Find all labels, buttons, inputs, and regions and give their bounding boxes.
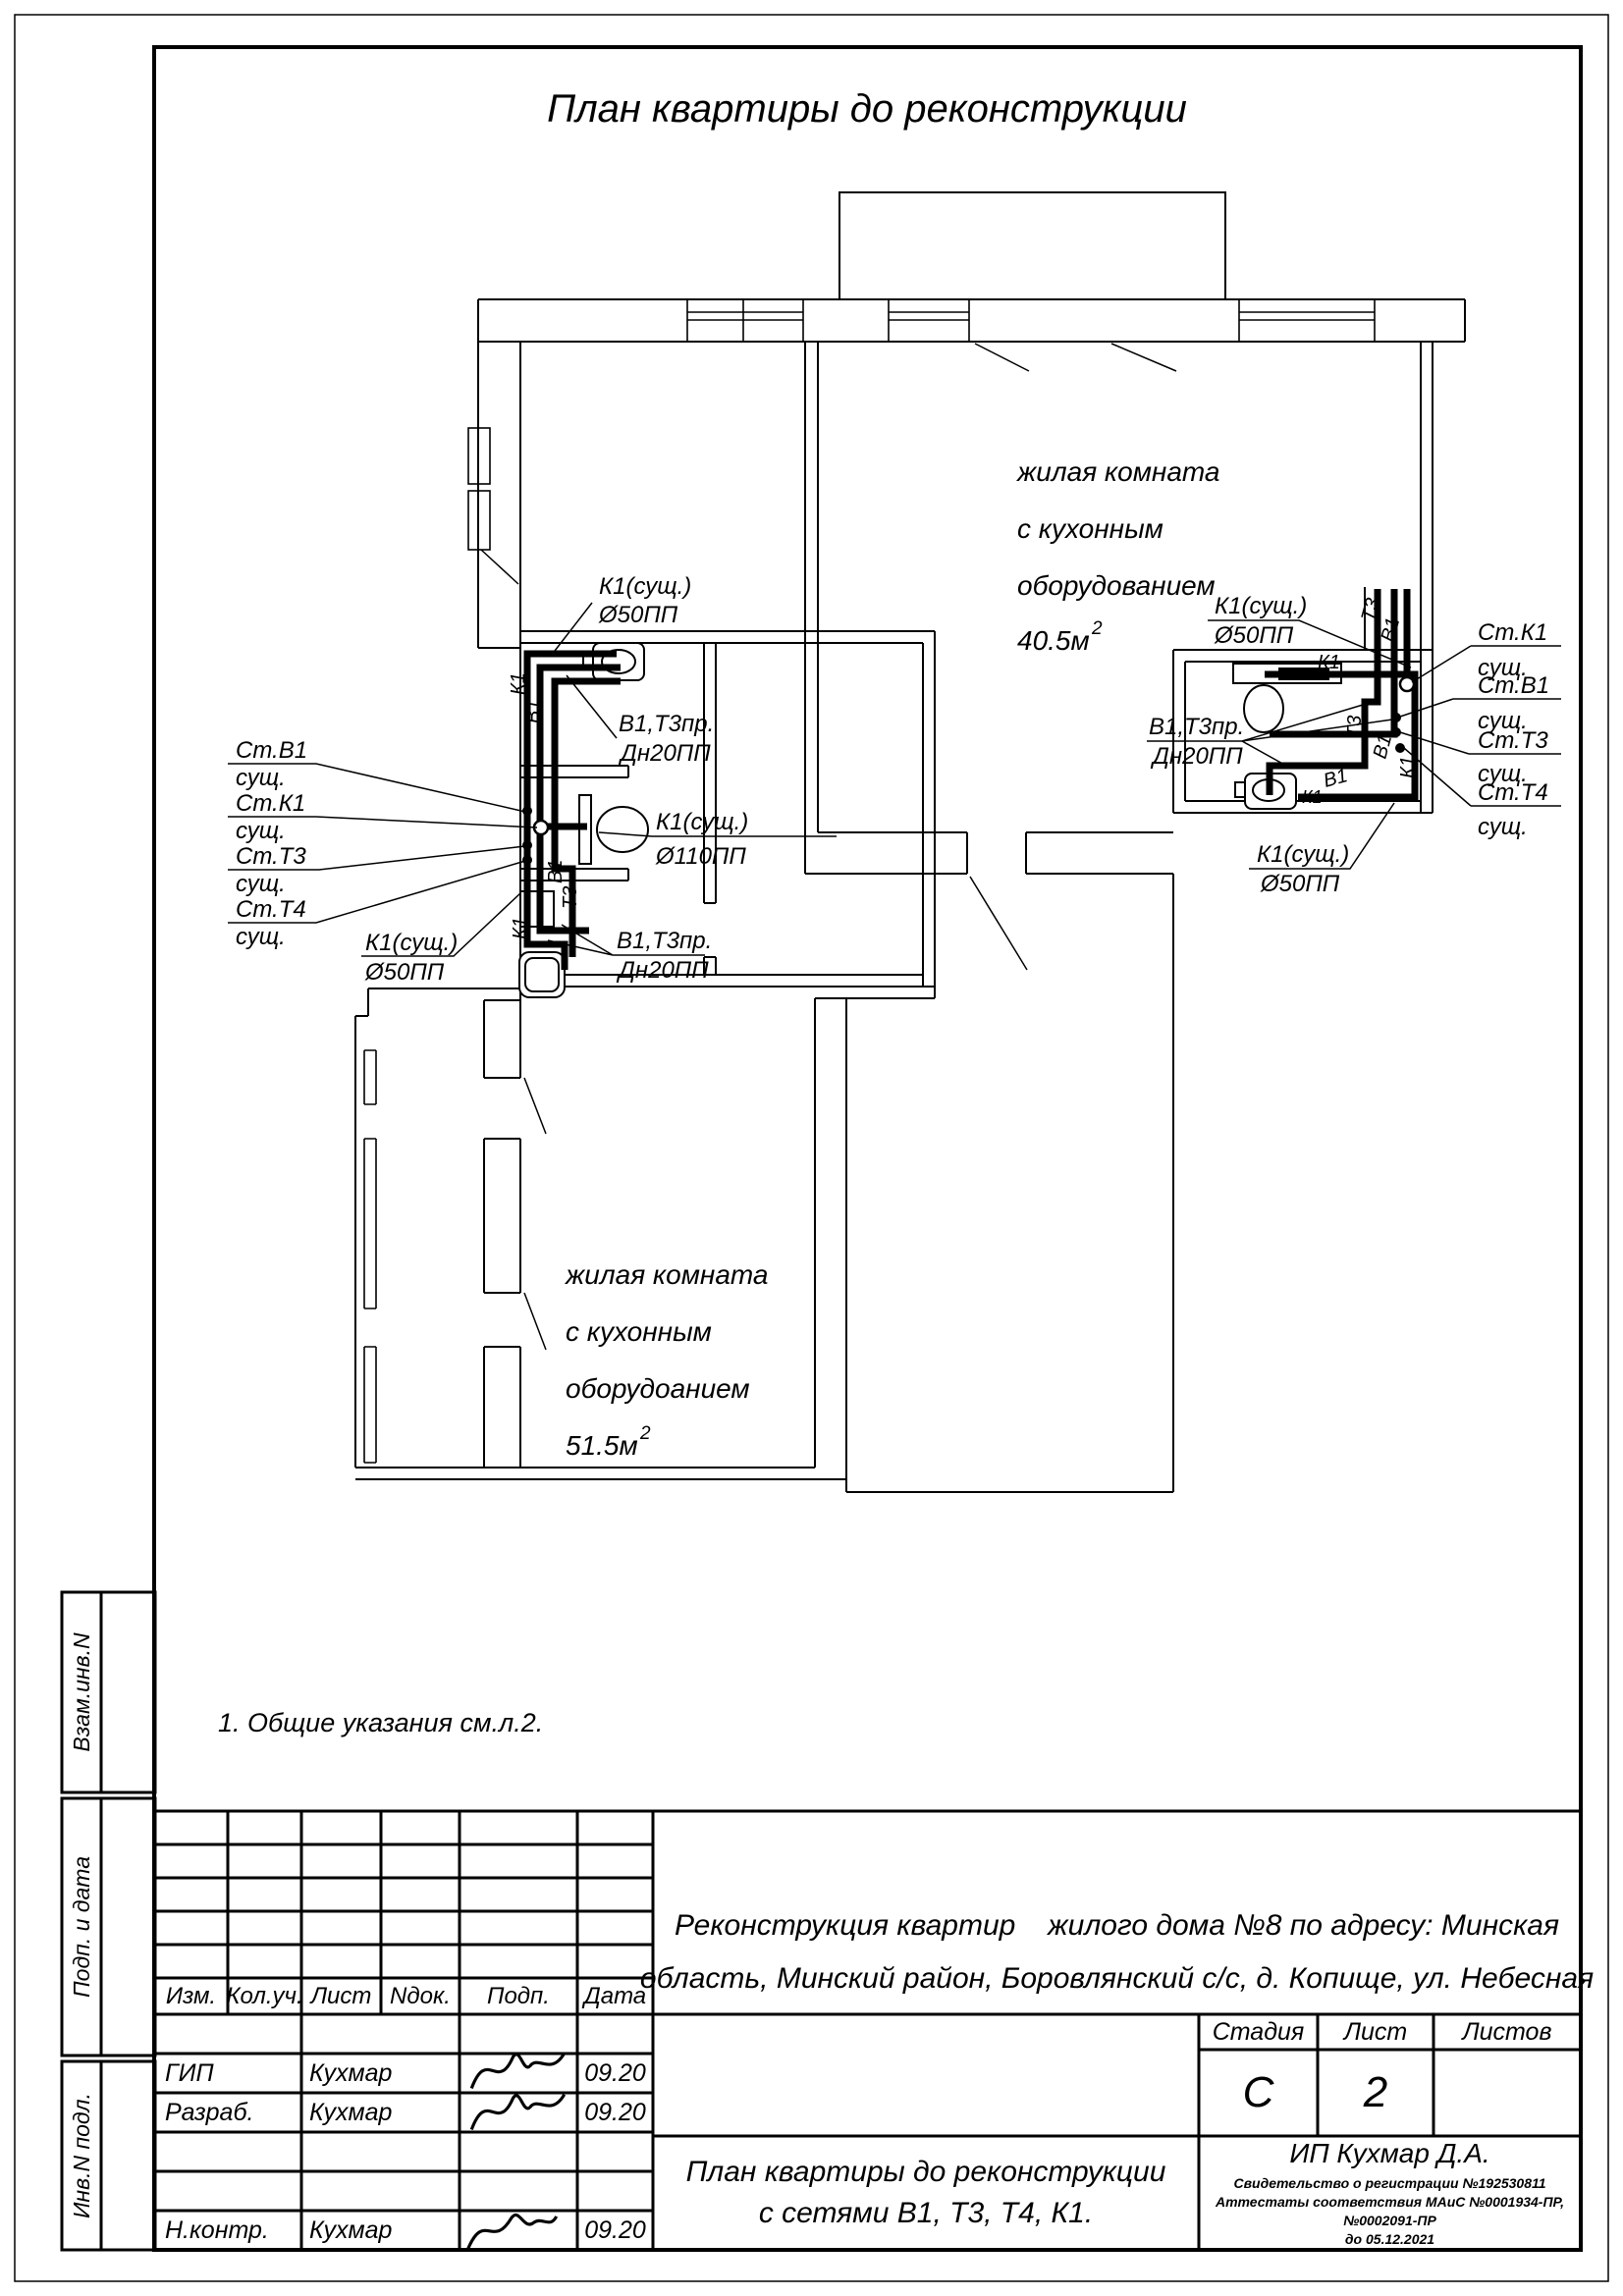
tb-drawing-title-line1: План квартиры до реконструкции [686, 2152, 1166, 2193]
bathtub-icon [519, 952, 565, 997]
tb-date-gip: 09.20 [577, 2054, 653, 2093]
tb-date-razrab: 09.20 [577, 2093, 653, 2132]
pipe-label-k1-50-left-top: К1(сущ.) [599, 573, 691, 600]
svg-text:Ø50ПП: Ø50ПП [364, 959, 445, 986]
signature-razrab [466, 2083, 569, 2137]
tb-company-cert2: Аттестаты соответствия МАиС №0001934-ПР,… [1199, 2193, 1581, 2230]
tb-company-cert3: до 05.12.2021 [1345, 2230, 1434, 2249]
svg-text:с кухонным: с кухонным [566, 1316, 712, 1347]
riser-v1-right [1391, 713, 1401, 722]
tb-col-koluch: Кол.уч. [228, 1978, 301, 2014]
tb-drawing-title-line2: с сетями В1, Т3, Т4, К1. [759, 2193, 1093, 2234]
svg-text:51.5м: 51.5м [566, 1430, 638, 1461]
tb-project-line2: область, Минский район, Боровлянский с/с… [653, 1953, 1581, 2004]
tb-company: ИП Кухмар Д.А. Свидетельство о регистрац… [1199, 2136, 1581, 2250]
svg-text:Ø50ПП: Ø50ПП [598, 602, 678, 628]
tb-company-name: ИП Кухмар Д.А. [1289, 2138, 1489, 2169]
svg-text:сущ.: сущ. [1478, 814, 1528, 840]
svg-text:К1: К1 [508, 672, 529, 695]
svg-text:Дн20ПП: Дн20ПП [616, 957, 709, 984]
stack-label-st-t3-left: Ст.Т3 [236, 843, 306, 870]
svg-text:К1: К1 [510, 917, 531, 939]
svg-text:оборудоанием: оборудоанием [566, 1373, 750, 1404]
drawing-sheet: жилая комната с кухонным оборудованием 4… [0, 0, 1623, 2296]
balcony-outline [839, 192, 1225, 299]
room-label-lower: жилая комната [564, 1259, 769, 1290]
tb-role-nkontr: Н.контр. [165, 2211, 298, 2250]
svg-text:К1: К1 [1397, 756, 1419, 778]
pipe-label-k1-110: К1(сущ.) [656, 809, 748, 835]
stack-label-st-k1-right: Ст.К1 [1478, 619, 1547, 646]
pipe-label-v1t3-left-bottom: В1,Т3пр. [617, 928, 712, 954]
tb-col-ndok: Nдок. [381, 1978, 460, 2014]
svg-text:сущ.: сущ. [236, 871, 286, 897]
svg-text:К1: К1 [1318, 652, 1340, 673]
pipe-label-v1t3-right: В1,Т3пр. [1149, 714, 1244, 740]
tb-project-line1-left: Реконструкция квартир [675, 1909, 1015, 1943]
svg-text:Ø110ПП: Ø110ПП [655, 843, 746, 870]
svg-text:В1: В1 [522, 700, 544, 723]
sink-icon [583, 643, 644, 680]
stack-label-st-v1-left: Ст.В1 [236, 737, 307, 764]
svg-text:40.5м: 40.5м [1017, 625, 1090, 656]
svg-text:Дн20ПП: Дн20ПП [1150, 743, 1243, 770]
toilet-icon [579, 795, 648, 864]
tb-sheets-value [1434, 2050, 1581, 2136]
svg-text:Т3: Т3 [560, 886, 581, 909]
general-note: 1. Общие указания см.л.2. [218, 1706, 543, 1739]
svg-text:оборудованием: оборудованием [1017, 570, 1216, 601]
tb-sheets-label: Листов [1434, 2014, 1581, 2050]
tb-stage-label: Стадия [1199, 2014, 1318, 2050]
tb-name-nkontr: Кухмар [309, 2211, 457, 2250]
svg-text:Ø50ПП: Ø50ПП [1214, 622, 1294, 649]
riser-t4-right [1395, 743, 1405, 753]
riser-t3-right [1391, 727, 1401, 737]
tb-stage-value: С [1199, 2050, 1318, 2136]
floor-plan-canvas: жилая комната с кухонным оборудованием 4… [0, 0, 1623, 2296]
page-title: План квартиры до реконструкции [393, 84, 1341, 133]
sink-icon [1235, 774, 1296, 809]
riser-k1-right [1400, 677, 1414, 691]
tb-date-nkontr: 09.20 [577, 2211, 653, 2250]
tb-drawing-title: План квартиры до реконструкции с сетями … [653, 2136, 1199, 2250]
svg-text:Т3: Т3 [1344, 716, 1366, 738]
tb-role-razrab: Разраб. [165, 2093, 298, 2132]
stack-labels: Ст.В1 сущ. Ст.К1 сущ. Ст.Т3 сущ. Ст.Т4 с… [236, 619, 1549, 950]
tb-col-podp: Подп. [460, 1978, 577, 2014]
tb-project-line1-right: жилого дома №8 по адресу: Минская [1048, 1909, 1559, 1943]
tb-col-izm: Изм. [154, 1978, 228, 2014]
stack-label-st-k1-left: Ст.К1 [236, 790, 305, 817]
pipe-label-k1-50-left-bottom: К1(сущ.) [365, 930, 458, 956]
stack-label-st-t4-left: Ст.Т4 [236, 896, 306, 923]
stack-label-st-t4-right: Ст.Т4 [1478, 779, 1548, 806]
svg-text:сущ.: сущ. [236, 924, 286, 950]
sidebar-label-vzam-inv: Взам.инв.N [62, 1592, 101, 1792]
tb-name-gip: Кухмар [309, 2054, 457, 2093]
tb-company-cert1: Свидетельство о регистрации №192530811 [1233, 2174, 1545, 2193]
svg-text:К1: К1 [1302, 787, 1323, 807]
svg-text:В1: В1 [545, 860, 567, 883]
svg-text:2: 2 [1091, 618, 1103, 639]
stack-label-st-t3-right: Ст.Т3 [1478, 727, 1548, 754]
riser-t4-left [522, 855, 532, 865]
tb-sheet-value: 2 [1318, 2050, 1434, 2136]
tb-name-razrab: Кухмар [309, 2093, 457, 2132]
tb-project-line1: Реконструкция квартир жилого дома №8 по … [653, 1900, 1581, 1951]
leader-lines [228, 344, 1561, 1350]
pipe-label-k1-50-right-top: К1(сущ.) [1215, 593, 1307, 619]
stack-label-st-v1-right: Ст.В1 [1478, 672, 1549, 699]
svg-text:2: 2 [639, 1423, 651, 1444]
pipe-label-k1-50-right-bottom: К1(сущ.) [1257, 841, 1349, 868]
sidebar-label-podp-data: Подп. и дата [62, 1798, 101, 2056]
sidebar-label-inv-podl: Инв.N подл. [62, 2061, 101, 2250]
riser-t3-left [522, 840, 532, 850]
svg-text:с кухонным: с кухонным [1017, 513, 1163, 544]
windows [364, 299, 1375, 1463]
signature-nkontr [460, 2201, 563, 2255]
svg-text:В1: В1 [1378, 615, 1405, 644]
tb-role-gip: ГИП [165, 2054, 298, 2093]
tb-col-list: Лист [301, 1978, 381, 2014]
pipe-label-v1t3-left-top: В1,Т3пр. [619, 711, 714, 737]
tb-sheet-label: Лист [1318, 2014, 1434, 2050]
svg-text:Ø50ПП: Ø50ПП [1260, 871, 1340, 897]
room-label-upper: жилая комната [1015, 456, 1220, 487]
svg-text:сущ.: сущ. [236, 765, 286, 791]
svg-text:Дн20ПП: Дн20ПП [618, 740, 711, 767]
svg-text:сущ.: сущ. [236, 818, 286, 844]
